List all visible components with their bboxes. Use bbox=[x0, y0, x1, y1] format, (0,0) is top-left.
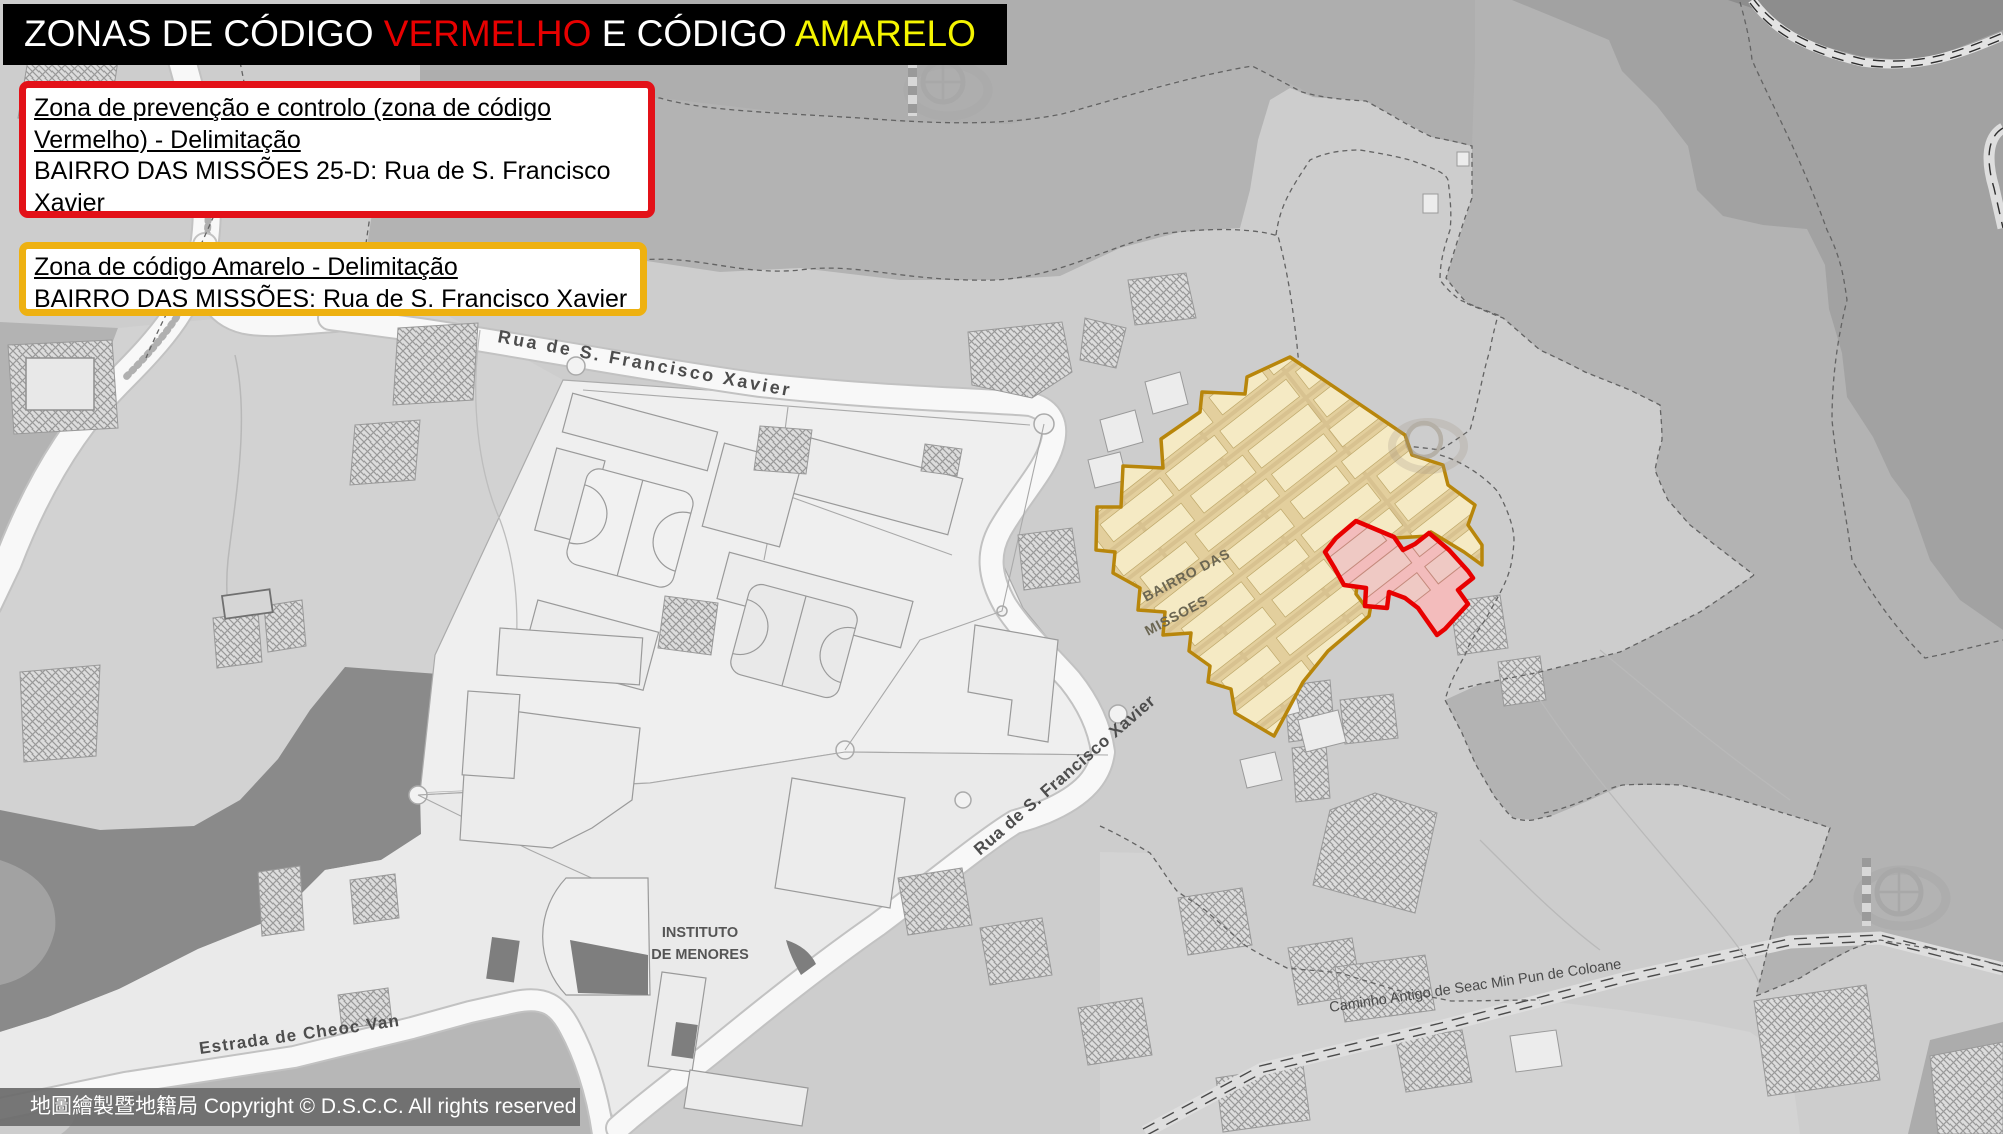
svg-text:DE MENORES: DE MENORES bbox=[651, 947, 749, 963]
svg-text:INSTITUTO: INSTITUTO bbox=[662, 925, 738, 941]
